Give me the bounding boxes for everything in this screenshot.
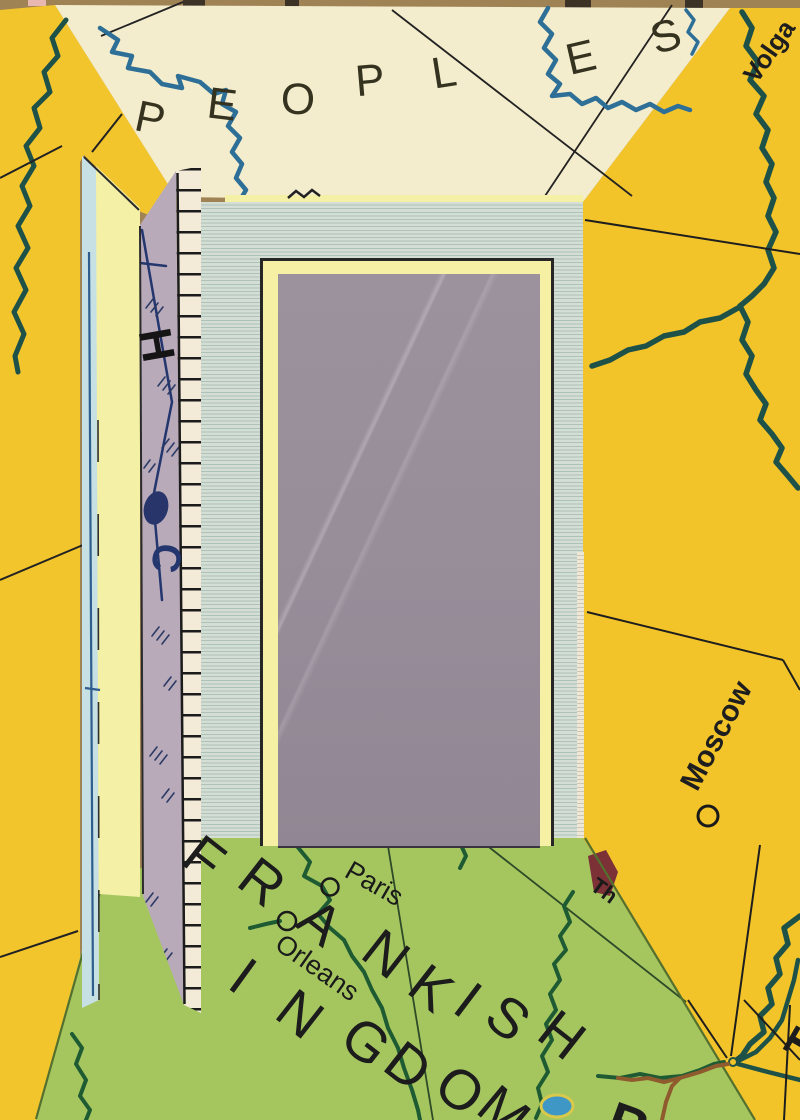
jamb-dashed-edge [98, 420, 99, 1000]
jamb-top-edge [84, 157, 139, 210]
collage-artwork: PEOPLESVolgaMoscowFRANKISHINGDOMBTParisO… [0, 0, 800, 1120]
edge-lines-layer [0, 0, 800, 1120]
jamb-blue-line [89, 252, 93, 996]
door-hinge-edge [140, 226, 143, 894]
ruler-inner-edge [178, 173, 185, 1004]
jamb-tick [85, 688, 100, 690]
